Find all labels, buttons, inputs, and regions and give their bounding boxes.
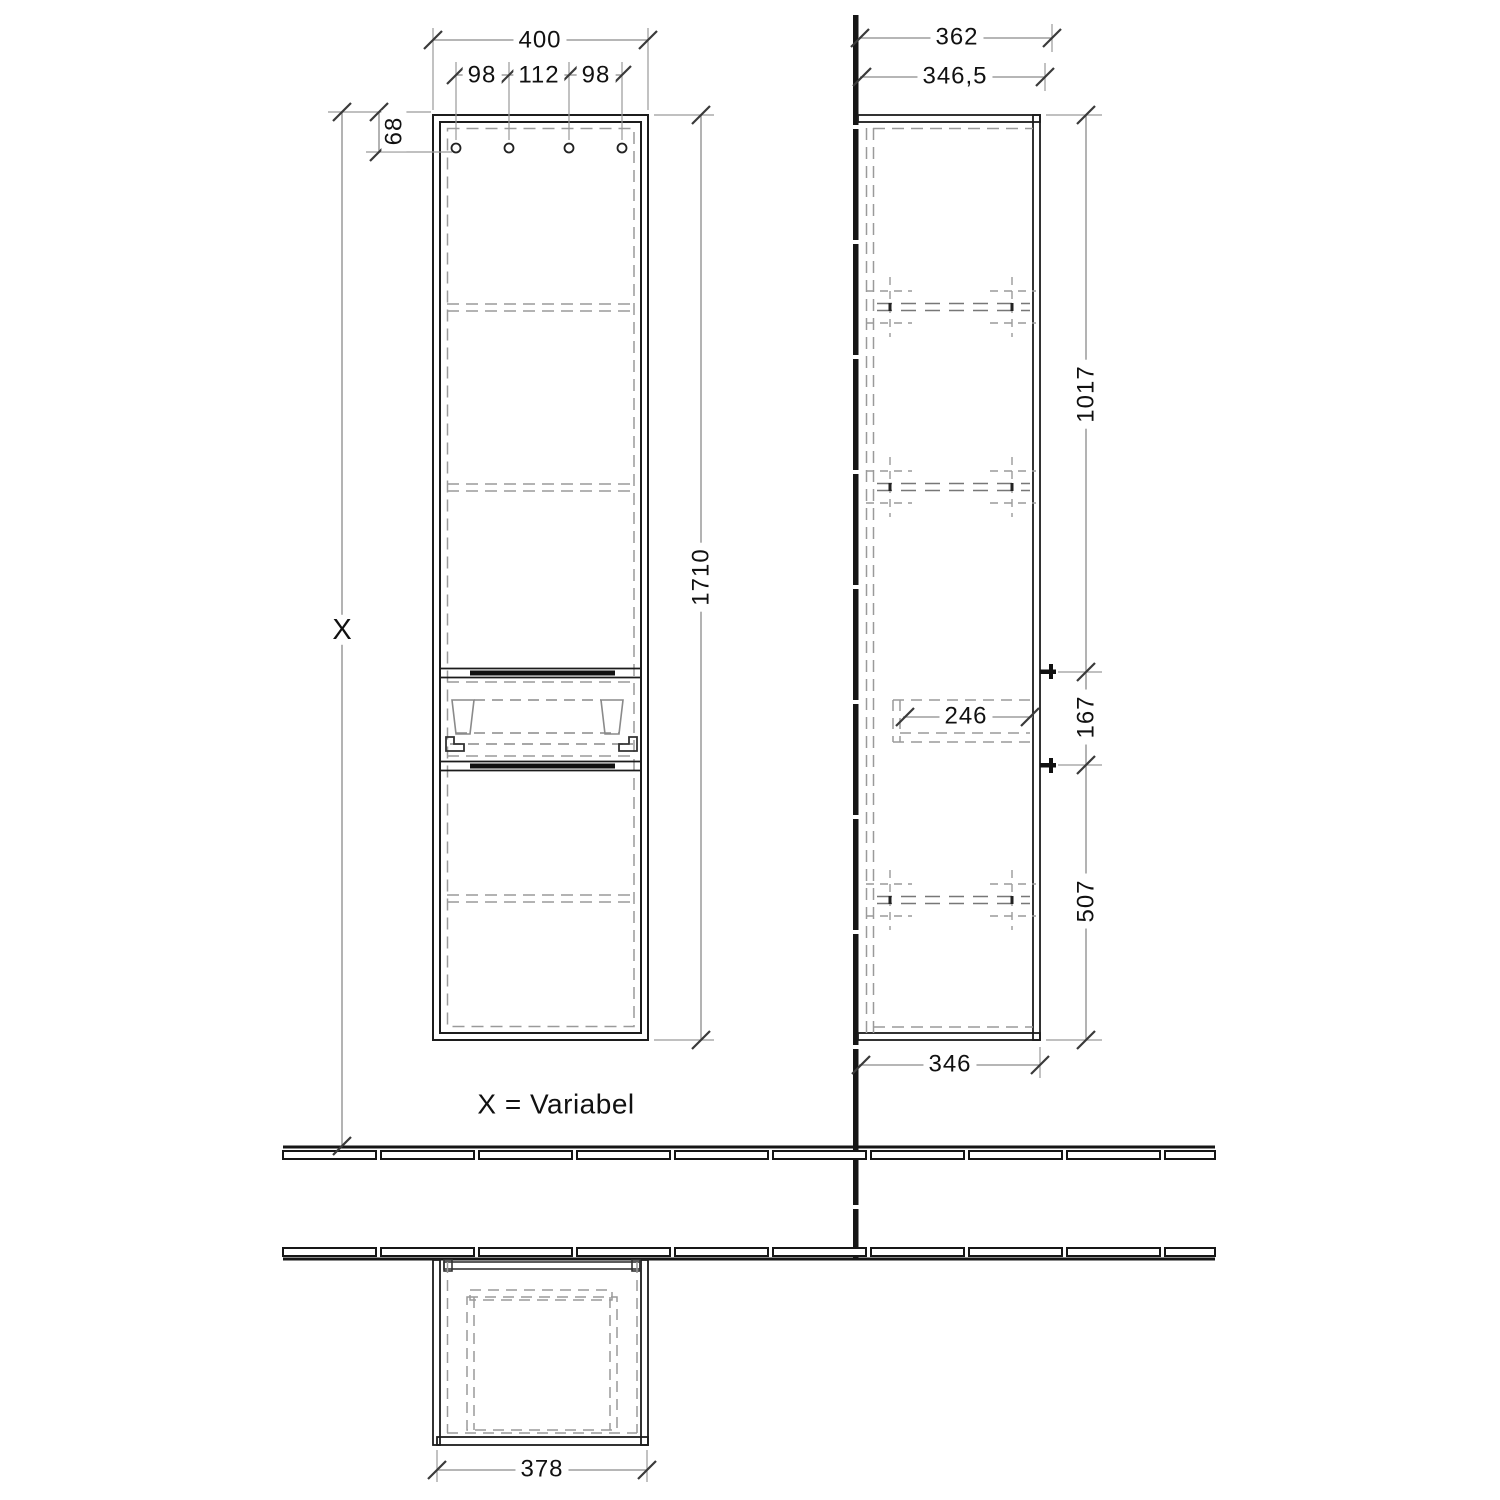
plan-left-panel (433, 1260, 440, 1445)
dim-lower-section-height: 507 (1073, 873, 1098, 928)
side-handle-profiles (1040, 664, 1056, 773)
side-front-panel (1033, 115, 1040, 1040)
dim-hole-center: 112 (513, 62, 564, 87)
plan-hanging-rail (444, 1260, 640, 1271)
dim-side-bottom-depth: 346 (923, 1051, 976, 1076)
front-hidden-edges (447, 129, 634, 1027)
plan-right-panel (641, 1260, 648, 1445)
plan-hidden-edges (447, 1262, 637, 1433)
front-basket (446, 700, 637, 751)
front-view (433, 115, 648, 1040)
dim-hole-left: 98 (463, 62, 502, 87)
side-top-panel (858, 115, 1040, 122)
drawing-linework (0, 0, 1500, 1500)
front-mounting-holes (452, 144, 627, 153)
technical-drawing-cabinet: 400 98 112 98 68 X 1710 X = Variabel 362… (0, 0, 1500, 1500)
dim-top-view-width: 378 (515, 1456, 568, 1481)
dim-side-total-depth: 362 (930, 24, 983, 49)
dim-handle-section-height: 167 (1073, 689, 1098, 744)
dim-front-total-width: 400 (513, 27, 566, 52)
dim-hole-top-offset: 68 (381, 111, 406, 152)
front-outer-outline (433, 115, 648, 1040)
dim-basket-depth: 246 (939, 703, 992, 728)
plan-front-door (437, 1437, 648, 1445)
dim-front-height: 1710 (688, 542, 713, 611)
side-bottom-panel (858, 1033, 1040, 1040)
side-shelf-markers (866, 277, 1036, 930)
floor-line (283, 1147, 1215, 1159)
front-handle-strips (440, 669, 641, 771)
dim-variable-height: X (327, 615, 356, 645)
plan-view (433, 1260, 648, 1445)
note-variable: X = Variabel (472, 1089, 639, 1118)
front-inner-outline (440, 122, 641, 1033)
dim-side-carcass-depth: 346,5 (917, 63, 992, 88)
dim-hole-right: 98 (577, 62, 616, 87)
plan-wall-line (283, 1248, 1215, 1259)
dim-upper-section-height: 1017 (1073, 359, 1098, 428)
